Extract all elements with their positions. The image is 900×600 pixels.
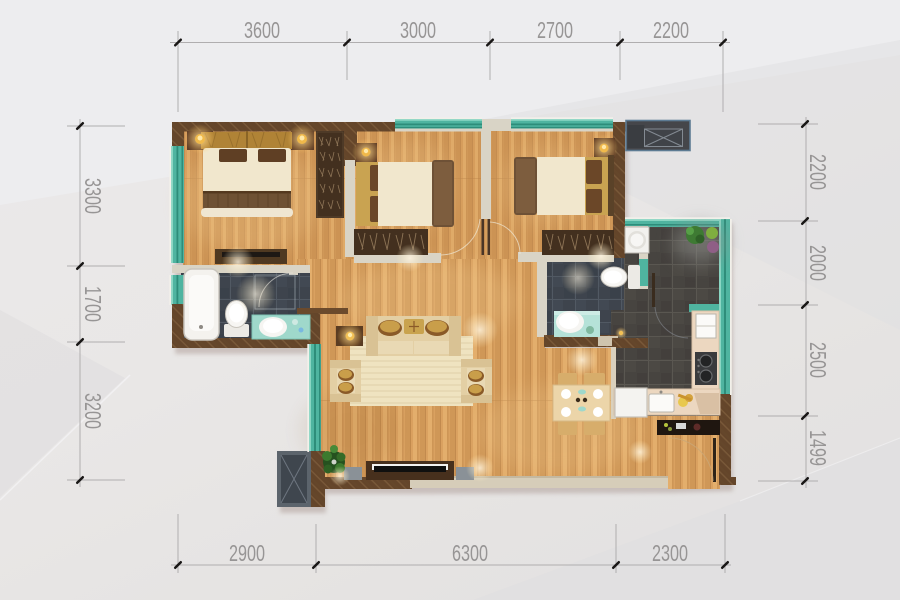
- svg-text:6300: 6300: [452, 540, 488, 566]
- svg-text:1499: 1499: [805, 430, 831, 466]
- svg-text:3300: 3300: [80, 178, 106, 214]
- svg-text:2900: 2900: [229, 540, 265, 566]
- svg-text:3000: 3000: [400, 17, 436, 43]
- svg-text:2200: 2200: [653, 17, 689, 43]
- svg-text:2200: 2200: [805, 154, 831, 190]
- svg-text:2000: 2000: [805, 245, 831, 281]
- svg-text:3600: 3600: [244, 17, 280, 43]
- svg-text:3200: 3200: [80, 393, 106, 429]
- svg-text:2500: 2500: [805, 342, 831, 378]
- svg-text:2300: 2300: [652, 540, 688, 566]
- svg-text:2700: 2700: [537, 17, 573, 43]
- svg-text:1700: 1700: [80, 286, 106, 322]
